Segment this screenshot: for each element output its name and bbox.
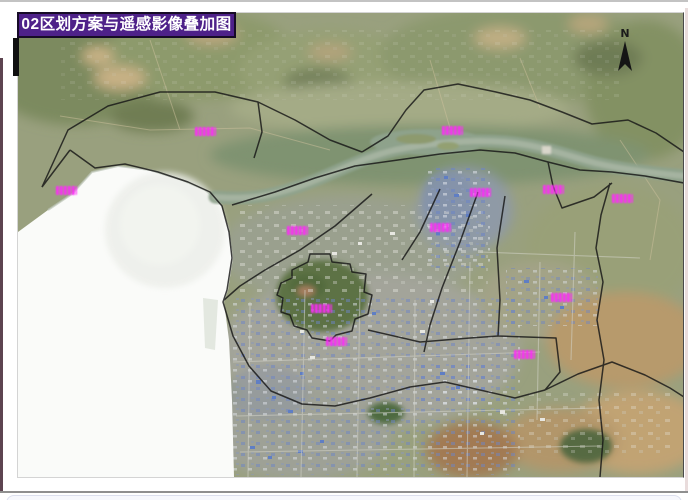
satellite-map (18, 13, 684, 477)
north-arrow-icon (612, 39, 638, 77)
lake (18, 166, 234, 477)
map-frame (17, 12, 684, 478)
bottom-panel-edge (6, 495, 682, 500)
north-arrow: N (612, 28, 638, 82)
document-page: 02区划方案与遥感影像叠加图 N (0, 0, 688, 500)
title-side-bar (13, 38, 19, 76)
map-title-text: 02区划方案与遥感影像叠加图 (21, 16, 231, 33)
page-top-border (0, 0, 688, 2)
page-left-border (0, 58, 3, 492)
north-label: N (612, 28, 638, 39)
map-title: 02区划方案与遥感影像叠加图 (17, 12, 236, 38)
page-bottom-border (0, 491, 688, 493)
